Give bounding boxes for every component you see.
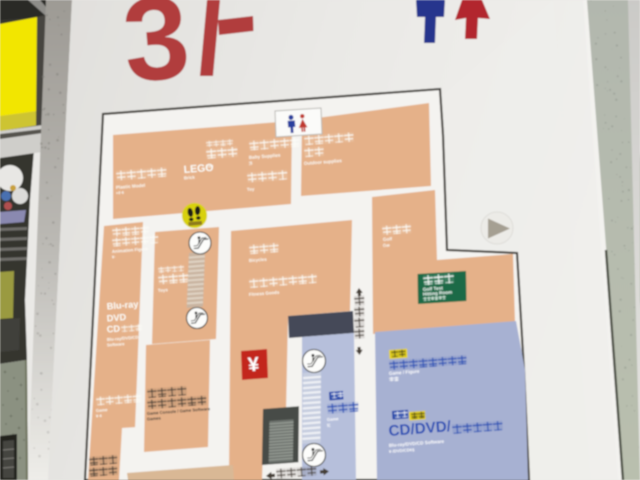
svg-text:Brick: Brick	[184, 175, 196, 181]
svg-text:¥·: ¥·	[112, 254, 116, 259]
svg-text:§¦: §¦	[327, 422, 331, 427]
svg-text:Game: Game	[96, 407, 109, 413]
svg-text:+ℓ·¢: +ℓ·¢	[116, 190, 125, 196]
svg-text:Game: Game	[327, 416, 340, 422]
svg-text:¥·¢: ¥·¢	[96, 413, 103, 419]
svg-text:Öæ: Öæ	[383, 242, 391, 248]
svg-text:3: 3	[118, 0, 195, 108]
svg-text:Toy: Toy	[206, 163, 214, 169]
svg-text:Golf: Golf	[383, 236, 393, 242]
svg-text:Toy: Toy	[247, 186, 255, 192]
svg-text:DVD: DVD	[106, 312, 126, 323]
svg-text:Toys: Toys	[158, 287, 169, 293]
svg-text:CD: CD	[106, 323, 120, 334]
